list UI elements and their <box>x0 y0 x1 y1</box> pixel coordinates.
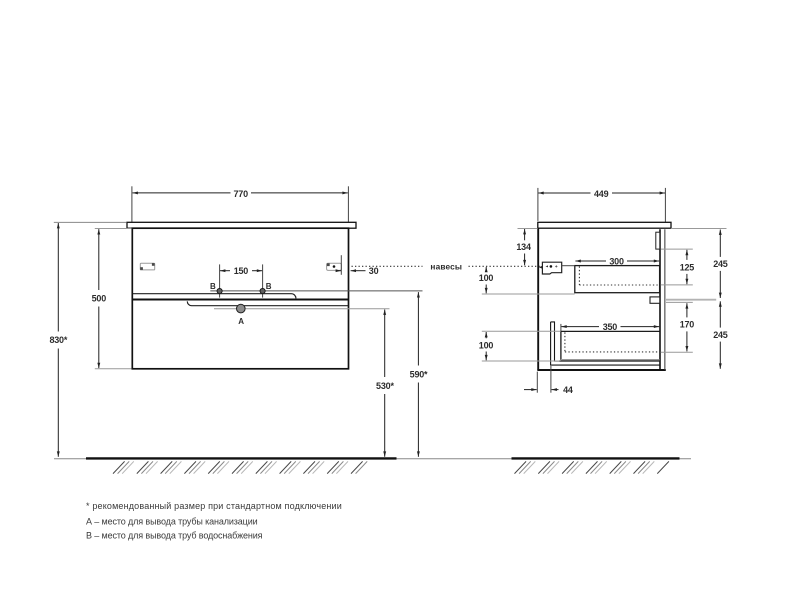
svg-text:125: 125 <box>680 262 695 272</box>
svg-text:590*: 590* <box>410 370 428 380</box>
svg-text:245: 245 <box>713 330 728 340</box>
svg-text:500: 500 <box>92 293 107 303</box>
svg-text:навесы: навесы <box>430 261 462 271</box>
svg-text:170: 170 <box>680 320 695 330</box>
svg-text:В: В <box>210 282 216 291</box>
svg-text:30: 30 <box>369 266 379 276</box>
svg-text:350: 350 <box>603 322 618 332</box>
svg-text:134: 134 <box>516 242 531 252</box>
svg-text:В: В <box>266 282 272 291</box>
svg-text:245: 245 <box>713 259 728 269</box>
svg-text:449: 449 <box>594 189 609 199</box>
svg-text:44: 44 <box>563 385 573 395</box>
svg-text:* рекомендованный размер при с: * рекомендованный размер при стандартном… <box>86 501 342 511</box>
svg-text:А: А <box>238 317 244 326</box>
svg-text:530*: 530* <box>376 381 394 391</box>
svg-text:770: 770 <box>233 189 248 199</box>
svg-text:150: 150 <box>234 266 249 276</box>
svg-text:А – место для вывода трубы кан: А – место для вывода трубы канализации <box>86 517 258 527</box>
svg-text:830*: 830* <box>49 335 67 345</box>
svg-text:В – место для вывода труб водо: В – место для вывода труб водоснабжения <box>86 530 263 540</box>
svg-text:100: 100 <box>479 273 494 283</box>
svg-text:300: 300 <box>609 256 624 266</box>
svg-text:100: 100 <box>479 340 494 350</box>
